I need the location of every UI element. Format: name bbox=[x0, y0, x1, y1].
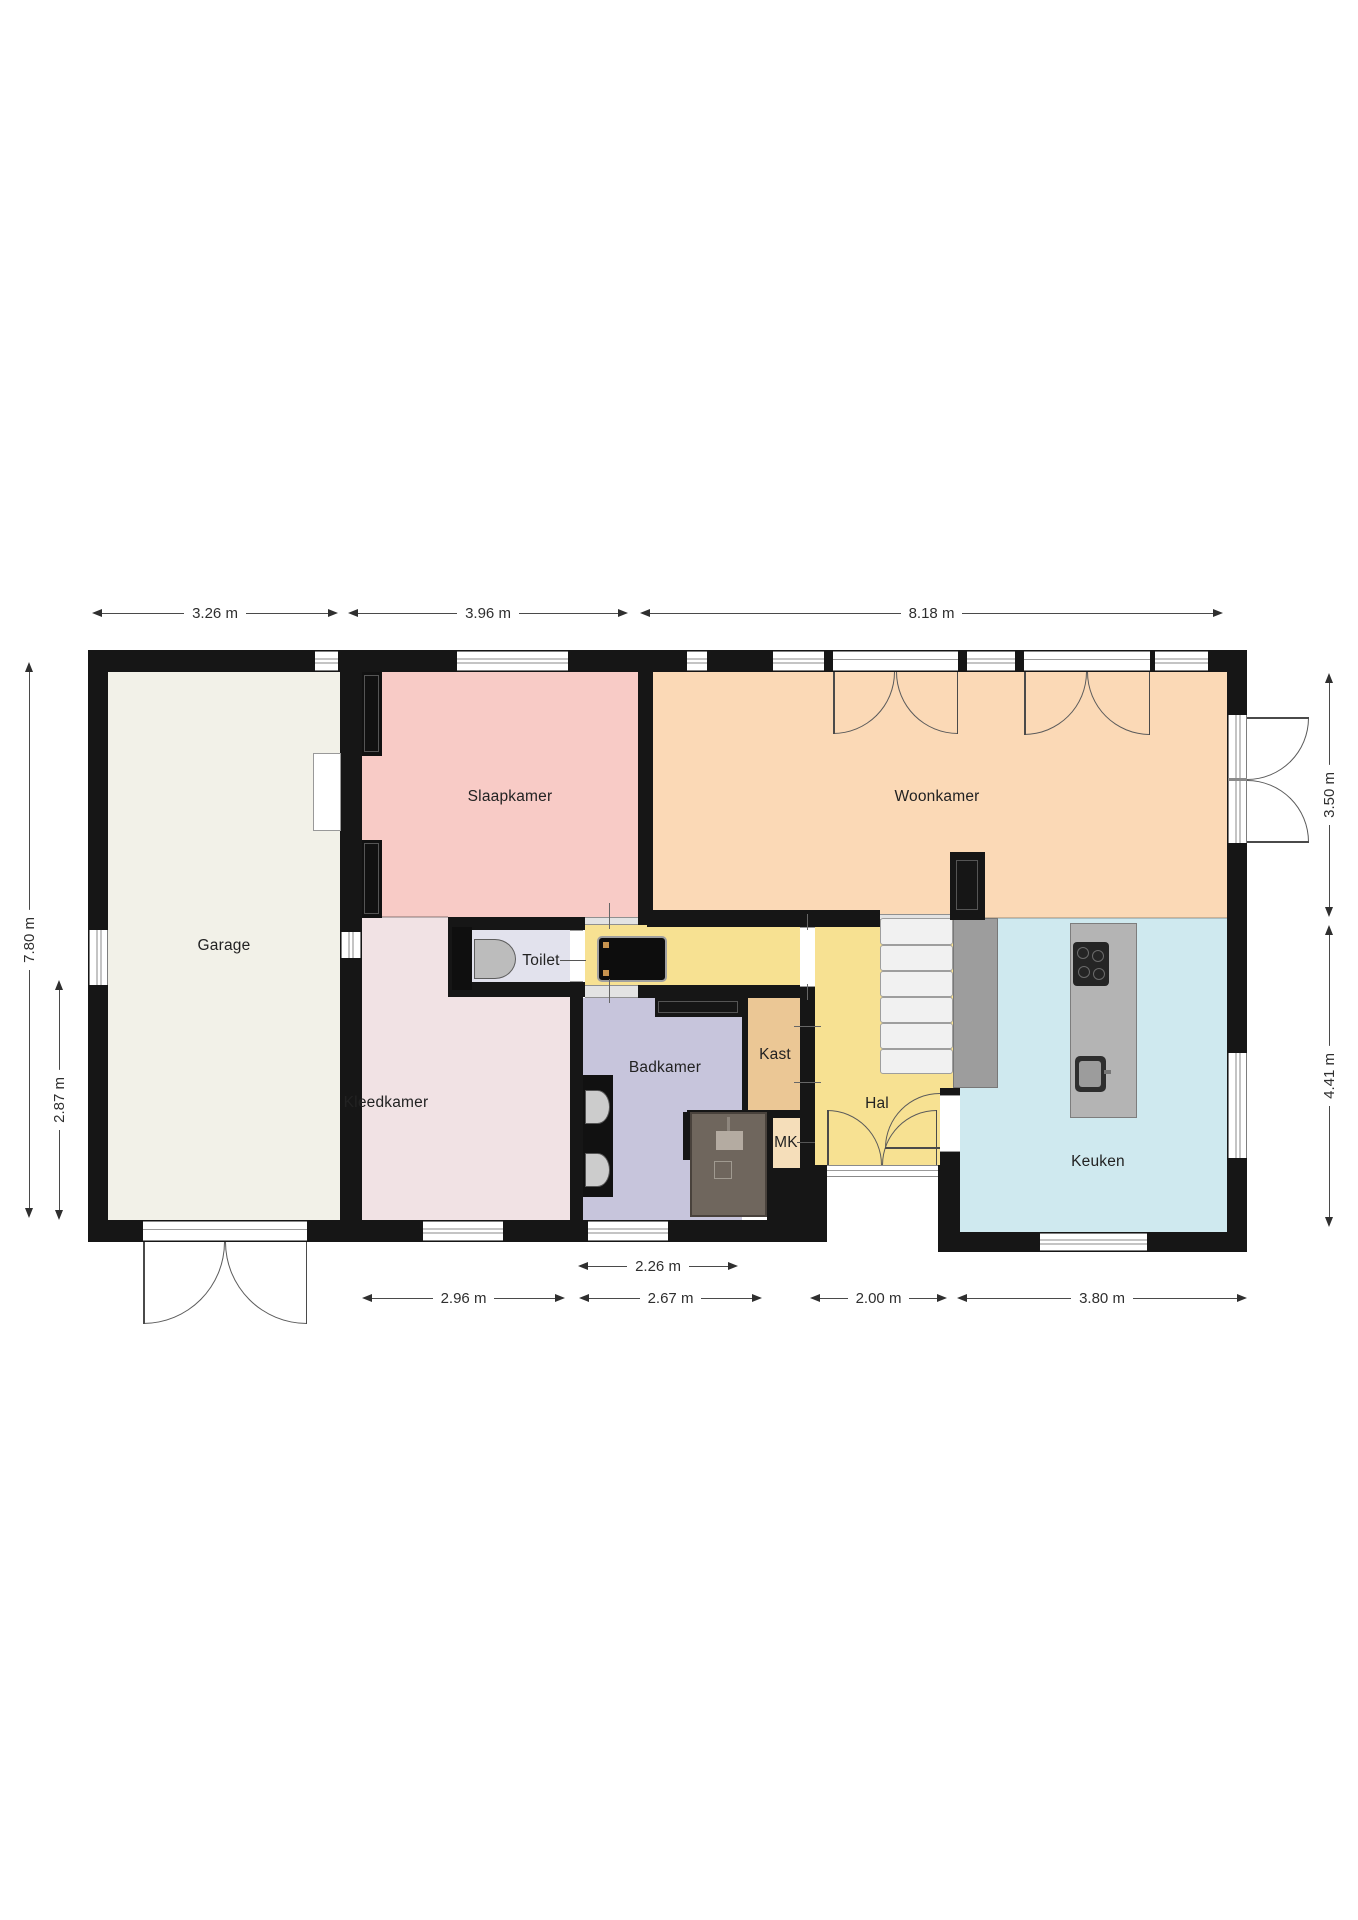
hall-cabinet-icon bbox=[597, 936, 667, 982]
window-woonkamer-top-4 bbox=[1155, 651, 1208, 671]
dimension-right-woonkamer: 3.50 m bbox=[1321, 673, 1337, 917]
window-keuken-bottom bbox=[1040, 1233, 1147, 1251]
label-mk: MK bbox=[774, 1134, 798, 1152]
window-garage-left bbox=[89, 930, 108, 985]
window-woonkamer-top-3 bbox=[967, 651, 1015, 671]
window-badkamer-bottom bbox=[588, 1221, 668, 1241]
wall-porch-right bbox=[938, 1165, 960, 1232]
label-hal: Hal bbox=[865, 1095, 889, 1113]
label-toilet: Toilet bbox=[522, 952, 559, 970]
garage-door-opening bbox=[143, 1221, 307, 1241]
wall-slaap-woon-divider bbox=[638, 650, 653, 925]
garage-niche bbox=[313, 753, 341, 831]
dimension-right-keuken: 4.41 m bbox=[1321, 925, 1337, 1227]
stair-wall bbox=[953, 918, 998, 1088]
garage-door-swing bbox=[143, 1242, 225, 1324]
wall-mk-left bbox=[767, 1118, 773, 1168]
window-garage-kleedkamer bbox=[341, 932, 361, 958]
dimension-bottom-keuken: 3.80 m bbox=[957, 1290, 1247, 1306]
hal-keuken-door-opening bbox=[940, 1095, 960, 1152]
floor-plan: Garage Slaapkamer Woonkamer Kleedkamer T… bbox=[0, 0, 1358, 1920]
french-door-opening-1 bbox=[833, 651, 958, 671]
dimension-bottom-badkamer-inner: 2.26 m bbox=[578, 1258, 738, 1274]
window-keuken-right bbox=[1228, 1053, 1247, 1158]
shower-head-icon bbox=[727, 1117, 730, 1132]
door-swing bbox=[1247, 780, 1309, 842]
label-badkamer: Badkamer bbox=[629, 1059, 701, 1077]
sink-icon bbox=[1075, 1056, 1106, 1092]
label-slaapkamer: Slaapkamer bbox=[468, 788, 553, 806]
wall-corridor-bottom bbox=[638, 985, 815, 998]
washbasin-icon bbox=[585, 1090, 610, 1124]
wall-chimney bbox=[950, 852, 985, 920]
toilet-label-leader bbox=[560, 960, 586, 961]
dimension-bottom-hal: 2.00 m bbox=[810, 1290, 947, 1306]
wall-woonkamer-bottom bbox=[647, 910, 880, 927]
label-kast: Kast bbox=[759, 1046, 791, 1064]
woonkamer-keuken-boundary bbox=[985, 917, 1227, 919]
dimension-left-garage: 7.80 m bbox=[21, 662, 37, 1218]
window-kleedkamer-bottom bbox=[423, 1221, 503, 1241]
wardrobe-icon bbox=[362, 672, 382, 756]
wall-shower-left bbox=[683, 1112, 690, 1160]
toilet-door-opening bbox=[570, 930, 583, 982]
window-slaapkamer-top bbox=[457, 651, 568, 671]
toilet-bowl-icon bbox=[474, 939, 516, 979]
french-door-opening-2 bbox=[1024, 651, 1150, 671]
door-swing bbox=[1247, 718, 1309, 780]
dimension-top-woonkamer: 8.18 m bbox=[640, 605, 1223, 621]
shower-drain-icon bbox=[714, 1161, 732, 1179]
label-keuken: Keuken bbox=[1071, 1153, 1125, 1171]
window-woonkamer-top-2 bbox=[773, 651, 824, 671]
label-garage: Garage bbox=[198, 937, 251, 955]
dimension-bottom-badkamer: 2.67 m bbox=[579, 1290, 762, 1306]
front-entrance-sill bbox=[827, 1165, 938, 1177]
shower-cabin bbox=[690, 1112, 767, 1217]
kitchen-island bbox=[1070, 923, 1137, 1118]
mk-label-leader bbox=[797, 1142, 815, 1143]
window-woonkamer-top-1 bbox=[687, 651, 707, 671]
opening-slaapkamer-corridor bbox=[585, 917, 638, 925]
label-woonkamer: Woonkamer bbox=[894, 788, 979, 806]
corridor-hal-door-opening bbox=[800, 927, 815, 987]
dimension-left-kleedkamer: 2.87 m bbox=[51, 980, 67, 1220]
opening-corridor-badkamer bbox=[585, 985, 638, 998]
badkamer-builtin-closet bbox=[655, 998, 742, 1017]
cooktop-icon bbox=[1073, 942, 1109, 986]
dimension-top-slaapkamer: 3.96 m bbox=[348, 605, 628, 621]
toilet-cistern bbox=[452, 927, 472, 990]
wall-kast-left bbox=[742, 998, 748, 1110]
french-door-right-meeting-post bbox=[1228, 778, 1247, 781]
wall-below-mk bbox=[767, 1168, 815, 1220]
label-kleedkamer: Kleedkamer bbox=[344, 1094, 429, 1112]
washbasin-icon bbox=[585, 1153, 610, 1187]
dimension-top-garage: 3.26 m bbox=[92, 605, 338, 621]
window-garage-top bbox=[315, 651, 338, 671]
garage-door-swing bbox=[225, 1242, 307, 1324]
wardrobe-icon bbox=[362, 840, 382, 918]
dimension-bottom-kleedkamer: 2.96 m bbox=[362, 1290, 565, 1306]
